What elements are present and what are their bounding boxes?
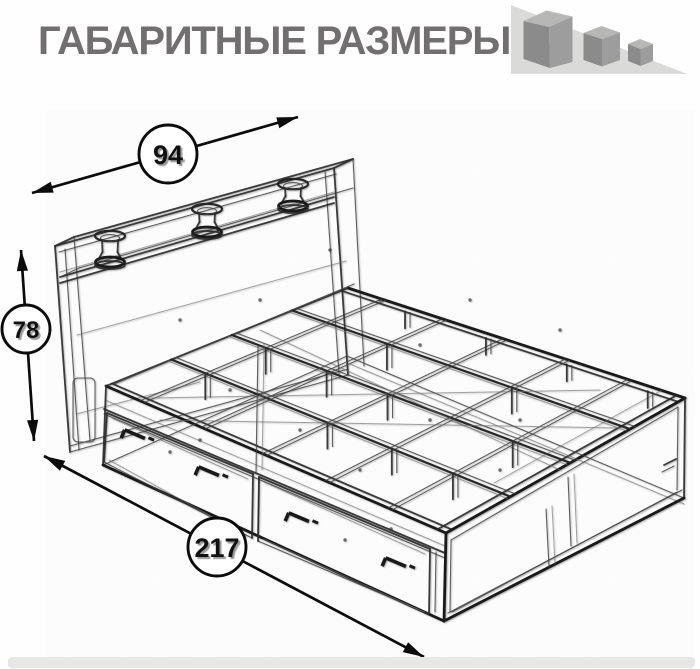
svg-text:217: 217 <box>194 533 239 563</box>
svg-text:78: 78 <box>13 317 40 344</box>
svg-text:94: 94 <box>153 140 183 170</box>
